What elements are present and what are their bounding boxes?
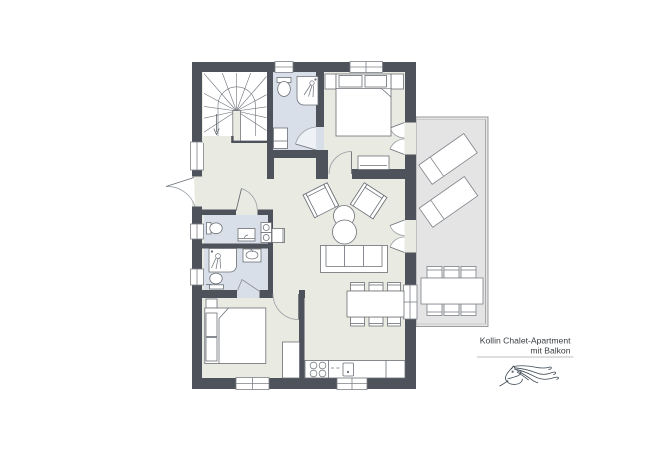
svg-text:mit Balkon: mit Balkon <box>530 346 570 356</box>
svg-text:Kollin Chalet-Apartment: Kollin Chalet-Apartment <box>480 336 571 346</box>
